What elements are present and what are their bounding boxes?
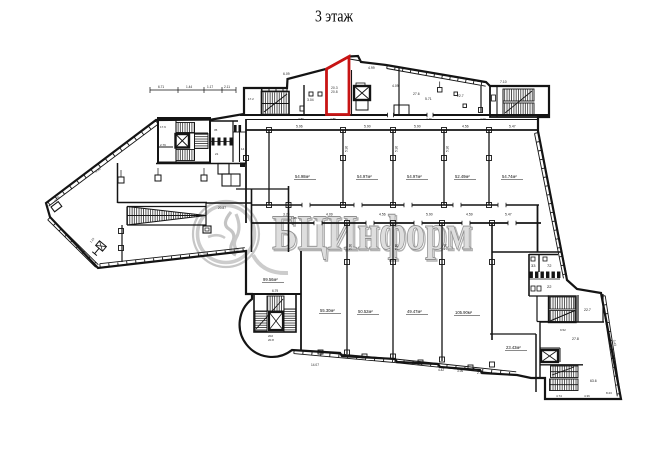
svg-text:54.74м²: 54.74м² [502, 174, 517, 179]
svg-text:27.6: 27.6 [413, 92, 420, 96]
svg-text:54.97м²: 54.97м² [407, 174, 422, 179]
svg-text:22.7: 22.7 [584, 308, 591, 312]
svg-text:55.30м²: 55.30м² [320, 308, 335, 313]
svg-text:4.09: 4.09 [392, 84, 399, 88]
svg-text:4.99: 4.99 [368, 66, 375, 70]
svg-text:105.90м²: 105.90м² [455, 310, 473, 315]
svg-text:63.6: 63.6 [590, 379, 597, 383]
svg-text:20.8: 20.8 [331, 90, 338, 94]
svg-text:99.56м²: 99.56м² [263, 277, 278, 282]
svg-text:3.04: 3.04 [307, 98, 314, 102]
svg-text:1.05: 1.05 [291, 216, 297, 220]
svg-text:5.90: 5.90 [446, 146, 450, 152]
svg-text:2.79: 2.79 [477, 371, 483, 375]
svg-text:5.71: 5.71 [425, 97, 432, 101]
svg-text:20.87: 20.87 [218, 206, 226, 210]
svg-text:35: 35 [214, 128, 218, 132]
svg-text:6.79: 6.79 [272, 289, 278, 293]
svg-text:3.96: 3.96 [457, 369, 463, 373]
svg-text:5.90: 5.90 [345, 146, 349, 152]
svg-text:4.42: 4.42 [438, 368, 444, 372]
svg-text:2.11: 2.11 [224, 85, 230, 89]
svg-text:9.52: 9.52 [560, 328, 566, 332]
svg-text:4.09: 4.09 [326, 213, 333, 217]
svg-text:2.79: 2.79 [160, 143, 166, 147]
svg-text:5.30: 5.30 [444, 244, 448, 250]
svg-text:52.49м²: 52.49м² [455, 174, 470, 179]
svg-text:3.20: 3.20 [283, 213, 290, 217]
svg-text:2.86: 2.86 [298, 117, 304, 121]
svg-text:21: 21 [215, 152, 219, 156]
svg-text:54.98м²: 54.98м² [295, 174, 310, 179]
svg-text:5.30: 5.30 [349, 244, 353, 250]
svg-text:4.59: 4.59 [466, 213, 473, 217]
svg-text:8.23: 8.23 [606, 391, 612, 395]
svg-text:5.90: 5.90 [414, 125, 421, 129]
svg-text:3 этаж: 3 этаж [315, 7, 353, 26]
svg-text:14: 14 [241, 147, 245, 151]
svg-text:4.36: 4.36 [584, 394, 590, 398]
svg-text:23.43м²: 23.43м² [506, 345, 521, 350]
svg-text:50.52м²: 50.52м² [358, 309, 373, 314]
svg-text:22: 22 [547, 284, 552, 289]
svg-text:1.10: 1.10 [89, 237, 96, 244]
svg-text:17.2: 17.2 [248, 97, 254, 101]
svg-text:5.30: 5.30 [395, 244, 399, 250]
svg-text:33: 33 [531, 263, 536, 268]
svg-text:4.85: 4.85 [330, 117, 336, 121]
svg-text:1.17: 1.17 [207, 85, 213, 89]
svg-text:20.8: 20.8 [268, 338, 274, 342]
svg-text:17.9: 17.9 [160, 125, 166, 129]
svg-text:4.56: 4.56 [462, 125, 469, 129]
svg-text:5.47: 5.47 [505, 213, 512, 217]
svg-text:4.56: 4.56 [379, 213, 386, 217]
svg-text:72: 72 [547, 263, 552, 268]
svg-text:5.47: 5.47 [509, 125, 516, 129]
svg-text:4.59: 4.59 [94, 167, 102, 174]
svg-text:49.47м²: 49.47м² [407, 309, 422, 314]
svg-text:5.90: 5.90 [364, 125, 371, 129]
svg-text:54.97м²: 54.97м² [357, 174, 372, 179]
svg-text:6.09: 6.09 [283, 72, 290, 76]
svg-text:5.90: 5.90 [395, 146, 399, 152]
svg-text:5.96: 5.96 [296, 125, 303, 129]
svg-text:27.8: 27.8 [572, 337, 579, 341]
svg-text:1.44: 1.44 [186, 85, 192, 89]
svg-text:5.90: 5.90 [426, 213, 433, 217]
svg-text:22.7: 22.7 [457, 94, 464, 98]
svg-text:4.46: 4.46 [426, 117, 432, 121]
svg-text:4.09: 4.09 [480, 117, 486, 121]
svg-text:7.10: 7.10 [500, 80, 507, 84]
svg-text:14.07: 14.07 [311, 363, 319, 367]
svg-text:4.74: 4.74 [556, 394, 562, 398]
svg-text:6.71: 6.71 [158, 85, 164, 89]
